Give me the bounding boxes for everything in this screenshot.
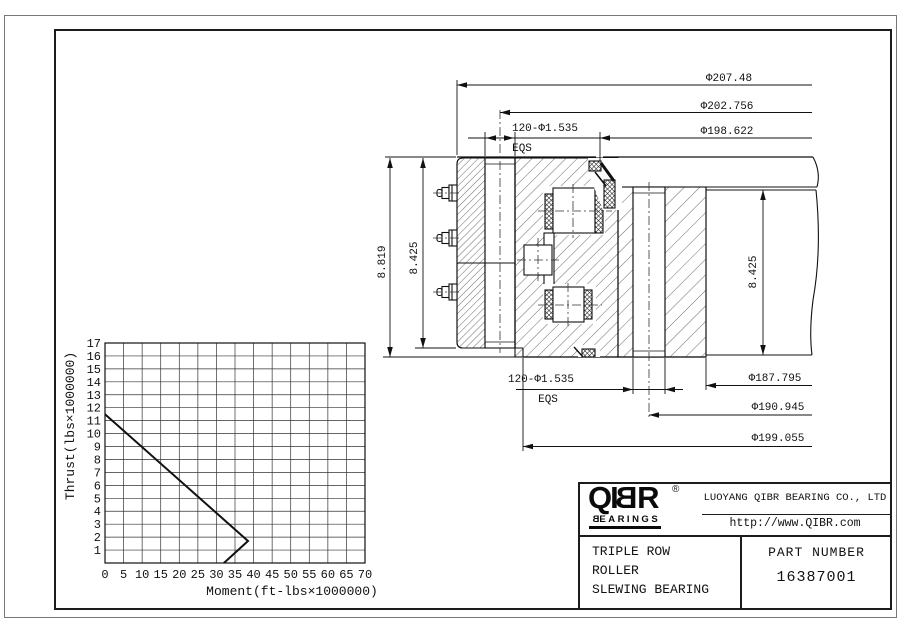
y-tick-label: 3 bbox=[94, 518, 101, 532]
title-block-subdivider bbox=[702, 514, 891, 515]
part-number-value: 16387001 bbox=[742, 569, 891, 586]
y-tick-label: 6 bbox=[94, 479, 101, 493]
y-tick-label: 5 bbox=[94, 492, 101, 506]
dim-od: Φ207.48 bbox=[706, 73, 752, 85]
logo-tagline: BEARINGS bbox=[590, 514, 660, 525]
upper-roller bbox=[543, 186, 605, 235]
y-tick-label: 1 bbox=[94, 544, 101, 558]
logo-letter-mirrored-b: B bbox=[617, 480, 637, 516]
y-tick-label: 8 bbox=[94, 453, 101, 467]
company-logo: QIBR ® BEARINGS bbox=[588, 484, 700, 534]
part-number-label: PART NUMBER bbox=[742, 545, 891, 560]
y-tick-label: 14 bbox=[87, 376, 101, 390]
dim-bolt-bottom: 120-Φ1.535 bbox=[508, 374, 574, 386]
x-tick-label: 0 bbox=[101, 568, 108, 582]
y-tick-label: 4 bbox=[94, 505, 101, 519]
x-tick-label: 55 bbox=[302, 568, 316, 582]
logo-letter: Q bbox=[588, 480, 610, 515]
y-tick-label: 15 bbox=[87, 363, 101, 377]
product-line-1: TRIPLE ROW bbox=[592, 542, 709, 561]
product-line-3: SLEWING BEARING bbox=[592, 580, 709, 599]
y-tick-label: 16 bbox=[87, 350, 101, 364]
dim-id-1: Φ187.795 bbox=[749, 373, 802, 385]
inner-ring-retainer bbox=[457, 158, 515, 348]
x-tick-label: 40 bbox=[246, 568, 260, 582]
load-chart: 0510152025303540455055606570 12345678910… bbox=[63, 337, 378, 599]
title-block: QIBR ® BEARINGS LUOYANG QIBR BEARING CO.… bbox=[578, 482, 891, 609]
logo-letter: I bbox=[610, 480, 617, 515]
outer-ring-side-face bbox=[706, 190, 818, 355]
company-name: LUOYANG QIBR BEARING CO., LTD bbox=[702, 492, 888, 504]
x-tick-label: 70 bbox=[358, 568, 372, 582]
x-tick-label: 25 bbox=[191, 568, 205, 582]
x-tick-label: 30 bbox=[209, 568, 223, 582]
dim-seal-dia: Φ198.622 bbox=[701, 126, 754, 138]
registered-trademark-icon: ® bbox=[672, 484, 679, 495]
x-tick-label: 35 bbox=[228, 568, 242, 582]
logo-tagline-mirrored-b: B bbox=[590, 514, 599, 525]
company-website: http://www.QIBR.com bbox=[702, 517, 888, 530]
chart-y-tick-labels: 1234567891011121314151617 bbox=[87, 337, 101, 558]
y-tick-label: 12 bbox=[87, 402, 101, 416]
dim-bolt-circle: Φ202.756 bbox=[701, 101, 754, 113]
chart-x-tick-labels: 0510152025303540455055606570 bbox=[101, 568, 372, 582]
dim-bolt-top-note: EQS bbox=[512, 143, 532, 155]
chart-capacity-curve bbox=[105, 414, 248, 563]
x-tick-label: 10 bbox=[135, 568, 149, 582]
y-tick-label: 17 bbox=[87, 337, 101, 351]
outer-ring bbox=[618, 187, 706, 357]
y-tick-label: 9 bbox=[94, 441, 101, 455]
y-tick-label: 11 bbox=[87, 415, 101, 429]
dim-id-2: Φ190.945 bbox=[752, 402, 805, 414]
dim-id-3: Φ199.055 bbox=[752, 433, 805, 445]
logo-letter: R bbox=[637, 480, 657, 515]
x-tick-label: 20 bbox=[172, 568, 186, 582]
dim-height-total: 8.819 bbox=[377, 245, 389, 278]
grease-fitting-icons bbox=[437, 185, 457, 300]
x-tick-label: 45 bbox=[265, 568, 279, 582]
dim-bolt-bottom-note: EQS bbox=[538, 394, 558, 406]
dim-height-outer: 8.425 bbox=[748, 255, 760, 288]
x-tick-label: 5 bbox=[120, 568, 127, 582]
y-tick-label: 10 bbox=[87, 428, 101, 442]
product-description: TRIPLE ROW ROLLER SLEWING BEARING bbox=[592, 542, 709, 599]
y-tick-label: 13 bbox=[87, 389, 101, 403]
x-tick-label: 15 bbox=[154, 568, 168, 582]
x-tick-label: 65 bbox=[339, 568, 353, 582]
lower-roller bbox=[543, 284, 596, 324]
dim-bolt-top: 120-Φ1.535 bbox=[512, 123, 578, 135]
dim-height-inner: 8.425 bbox=[409, 241, 421, 274]
chart-y-axis-label: Thrust(lbs×1000000) bbox=[63, 352, 78, 500]
logo-underline bbox=[589, 526, 661, 529]
chart-x-axis-label: Moment(ft-lbs×1000000) bbox=[206, 584, 378, 599]
y-tick-label: 7 bbox=[94, 466, 101, 480]
drawing-sheet: Φ207.48 Φ202.756 Φ198.622 120-Φ1.535 EQS… bbox=[0, 0, 900, 636]
product-line-2: ROLLER bbox=[592, 561, 709, 580]
logo-wordmark: QIBR bbox=[588, 480, 658, 516]
y-tick-label: 2 bbox=[94, 531, 101, 545]
part-number-cell: PART NUMBER 16387001 bbox=[742, 537, 891, 586]
x-tick-label: 60 bbox=[321, 568, 335, 582]
outer-ring-top-band bbox=[603, 157, 818, 187]
logo-tagline-rest: EARINGS bbox=[599, 514, 660, 525]
x-tick-label: 50 bbox=[284, 568, 298, 582]
